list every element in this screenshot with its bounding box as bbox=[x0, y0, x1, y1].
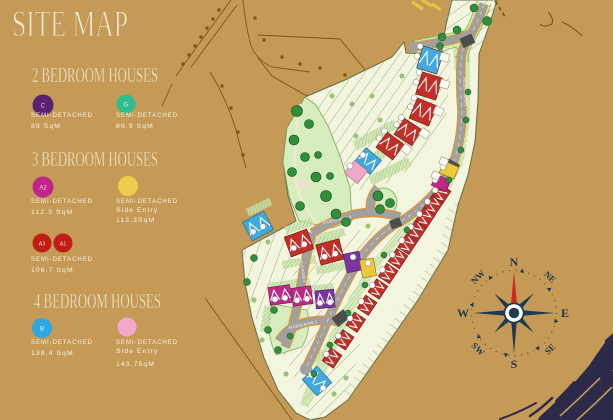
svg-text:SEMI-DETACHED: SEMI-DETACHED bbox=[116, 198, 178, 205]
svg-text:113.3SqM: 113.3SqM bbox=[116, 217, 155, 224]
svg-text:Side Entry: Side Entry bbox=[116, 207, 158, 214]
svg-text:SITE MAP: SITE MAP bbox=[12, 4, 128, 45]
svg-text:SEMI-DETACHED: SEMI-DETACHED bbox=[31, 256, 93, 263]
svg-text:C: C bbox=[41, 103, 46, 110]
svg-text:138.4 SqM: 138.4 SqM bbox=[31, 350, 74, 357]
svg-text:SEMI-DETACHED: SEMI-DETACHED bbox=[116, 112, 178, 119]
svg-text:N: N bbox=[510, 255, 519, 269]
svg-text:SEMI-DETACHED: SEMI-DETACHED bbox=[116, 339, 178, 346]
svg-text:G: G bbox=[123, 102, 128, 109]
svg-text:Side Entry: Side Entry bbox=[116, 348, 158, 355]
svg-text:4 BEDROOM HOUSES: 4 BEDROOM HOUSES bbox=[34, 289, 161, 313]
svg-text:3 BEDROOM HOUSES: 3 BEDROOM HOUSES bbox=[32, 147, 158, 171]
svg-text:E: E bbox=[561, 306, 569, 320]
svg-text:SEMI-DETACHED: SEMI-DETACHED bbox=[31, 198, 93, 205]
svg-text:A2: A2 bbox=[39, 186, 47, 192]
svg-text:2 BEDROOM HOUSES: 2 BEDROOM HOUSES bbox=[32, 63, 158, 87]
svg-text:SEMI-DETACHED: SEMI-DETACHED bbox=[31, 339, 93, 346]
svg-text:89.9 SqM: 89.9 SqM bbox=[116, 123, 154, 130]
svg-text:W: W bbox=[457, 306, 469, 320]
svg-text:88 SqM: 88 SqM bbox=[31, 123, 61, 130]
svg-text:A3: A3 bbox=[39, 242, 46, 248]
svg-text:A1: A1 bbox=[60, 242, 67, 248]
svg-text:112.3 SqM: 112.3 SqM bbox=[31, 209, 73, 216]
svg-text:SEMI-DETACHED: SEMI-DETACHED bbox=[31, 112, 93, 119]
svg-text:B: B bbox=[40, 326, 44, 333]
svg-text:106.7 SqM: 106.7 SqM bbox=[31, 267, 74, 274]
svg-text:143.75qM: 143.75qM bbox=[116, 361, 155, 368]
svg-text:S: S bbox=[511, 357, 518, 371]
